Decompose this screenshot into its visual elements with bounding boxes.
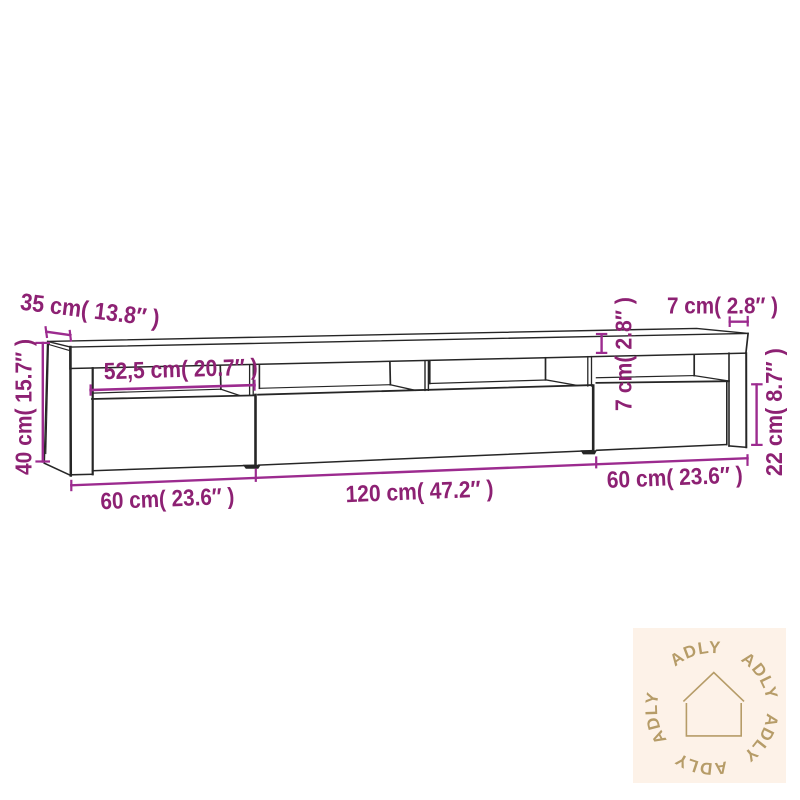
svg-text:7 cm( 2.8″ ): 7 cm( 2.8″ )	[667, 293, 778, 319]
svg-text:7 cm( 2.8″ ): 7 cm( 2.8″ )	[611, 297, 637, 411]
svg-text:52,5 cm( 20.7″ ): 52,5 cm( 20.7″ )	[103, 354, 258, 385]
svg-text:60 cm( 23.6″ ): 60 cm( 23.6″ )	[606, 461, 743, 492]
svg-text:40 cm( 15.7″ ): 40 cm( 15.7″ )	[11, 339, 37, 475]
svg-text:22 cm( 8.7″ ): 22 cm( 8.7″ )	[761, 348, 787, 476]
svg-text:60 cm( 23.6″ ): 60 cm( 23.6″ )	[100, 483, 235, 514]
